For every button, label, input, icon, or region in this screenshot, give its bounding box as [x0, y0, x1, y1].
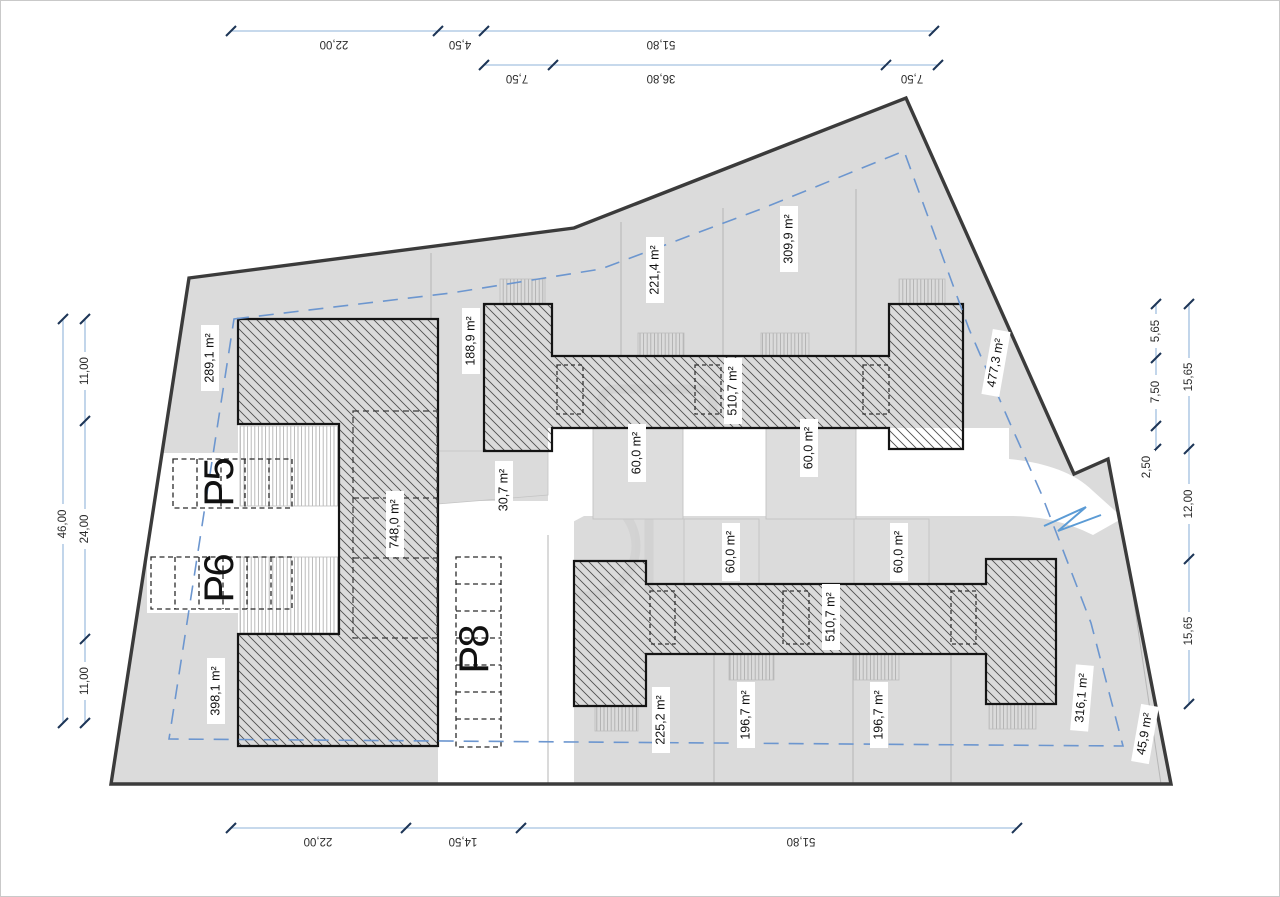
area-label-225: 225,2 m²: [653, 695, 667, 744]
area-label-398: 398,1 m²: [208, 666, 222, 715]
dim-label: 22,00: [320, 38, 349, 50]
dim-label: 11,00: [79, 667, 91, 695]
parking-label-p8: P8: [450, 626, 497, 674]
dim-right-inner: 5,65 7,50 2,50: [1139, 299, 1164, 484]
dim-label: 7,50: [506, 72, 528, 84]
dim-label: 51,80: [787, 835, 816, 847]
parking-label-p5: P5: [195, 459, 242, 507]
area-label-196-1: 196,7 m²: [738, 690, 752, 739]
area-label-188: 188,9 m²: [463, 316, 477, 365]
dim-label: 22,00: [304, 835, 333, 847]
dim-label: 5,65: [1150, 320, 1162, 342]
dim-label: 51,80: [647, 38, 676, 50]
dim-label: 14,50: [449, 835, 478, 847]
dim-label: 4,50: [449, 38, 471, 50]
dim-label: 15,65: [1183, 363, 1195, 392]
area-label-60-upper-1: 60,0 m²: [629, 432, 643, 474]
area-label-221: 221,4 m²: [647, 245, 661, 294]
area-label-510-lower: 510,7 m²: [823, 592, 837, 641]
area-label-309: 309,9 m²: [781, 214, 795, 263]
patch-30-7: [438, 451, 548, 504]
dim-left-outer: 46,00: [55, 314, 71, 728]
area-label-30: 30,7 m²: [496, 469, 510, 511]
area-label-60-upper-2: 60,0 m²: [801, 427, 815, 469]
dim-label: 7,50: [1150, 381, 1162, 403]
parking-label-p6: P6: [195, 555, 242, 603]
dim-label: 24,00: [79, 515, 91, 544]
dim-top-row1: 22,00 4,50 51,80: [226, 26, 939, 50]
dim-right-outer: 15,65 12,00 15,65: [1181, 299, 1197, 709]
dim-left-inner: 11,00 24,00 11,00: [77, 314, 93, 728]
dim-label: 12,00: [1183, 490, 1195, 519]
area-label-510-upper: 510,7 m²: [725, 366, 739, 415]
dim-label: 46,00: [57, 510, 69, 539]
area-label-748: 748,0 m²: [387, 499, 401, 548]
dim-label: 36,80: [647, 72, 676, 84]
area-label-60-lower-1: 60,0 m²: [723, 531, 737, 573]
area-label-60-lower-2: 60,0 m²: [891, 531, 905, 573]
dim-label: 11,00: [79, 357, 91, 385]
area-label-196-2: 196,7 m²: [871, 690, 885, 739]
site-plan-canvas: 289,1 m² 188,9 m² 221,4 m² 309,9 m² 477,…: [0, 0, 1280, 897]
dim-top-row2: 7,50 36,80 7,50: [479, 60, 943, 84]
patio-lower-1: [684, 519, 759, 584]
dim-label: 15,65: [1183, 617, 1195, 646]
dim-label: 2,50: [1141, 456, 1153, 478]
dim-label: 7,50: [901, 72, 923, 84]
site-plan-drawing: 289,1 m² 188,9 m² 221,4 m² 309,9 m² 477,…: [1, 1, 1279, 896]
area-label-289: 289,1 m²: [202, 333, 216, 382]
dim-bottom-row: 22,00 14,50 51,80: [226, 823, 1022, 847]
